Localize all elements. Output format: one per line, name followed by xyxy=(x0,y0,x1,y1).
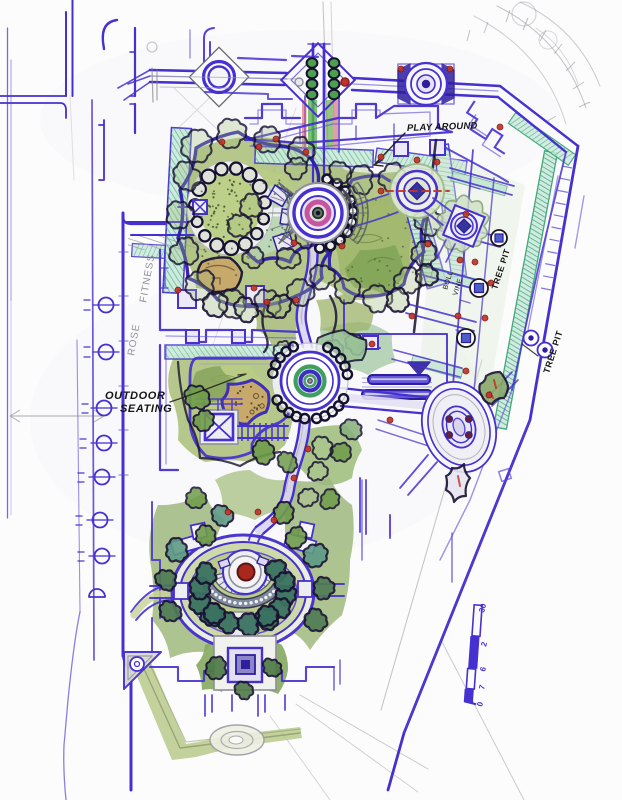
svg-text:SEATING: SEATING xyxy=(120,403,172,415)
svg-text:OUTDOOR: OUTDOOR xyxy=(105,390,165,402)
